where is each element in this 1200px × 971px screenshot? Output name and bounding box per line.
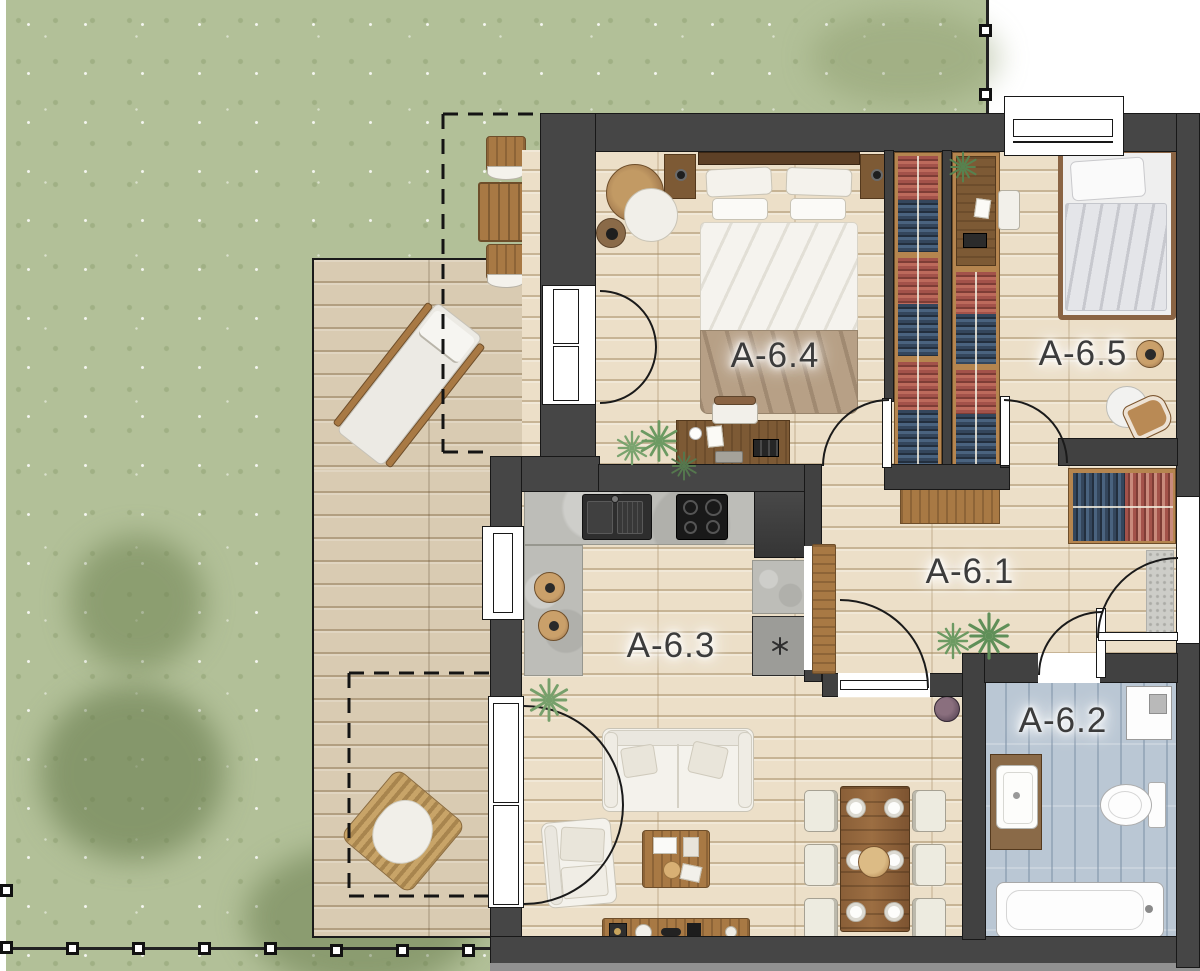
lamp-icon: [871, 169, 883, 181]
single-bed: [1058, 148, 1176, 320]
cooktop: [676, 494, 728, 540]
coffee-table: [642, 830, 710, 888]
lamp-icon: [675, 169, 687, 181]
kitchen-sink: [582, 494, 652, 540]
wall-a64-east: [884, 150, 894, 402]
closet-rail: [1073, 506, 1173, 508]
wall-a65-south: [1058, 438, 1178, 466]
floor-plan: A-6.1 A-6.2 A-6.3 A-6.4 A-6.5: [0, 0, 1200, 971]
toilet: [1100, 780, 1170, 830]
counter-stool: [538, 610, 569, 641]
fence-post: [979, 24, 992, 37]
bistro-chair: [486, 244, 526, 290]
round-chair-cushion: [624, 188, 678, 242]
door-leaf-a64: [882, 398, 892, 468]
garden-edge-strip: [0, 0, 6, 971]
dining-chair: [912, 790, 946, 832]
dining-chair: [804, 898, 838, 940]
plate: [884, 902, 904, 922]
bath-door-opening: [1038, 653, 1100, 683]
washing-machine: [1126, 686, 1172, 740]
entry-door-opening: [1176, 496, 1200, 644]
vanity: [990, 754, 1042, 850]
faucet-icon: [1145, 905, 1153, 913]
desk-chair-a65: [998, 190, 1020, 230]
wall-bottom: [490, 936, 1200, 966]
side-table: [596, 218, 626, 248]
wall-kitchen-north: [598, 464, 822, 492]
decor-vase: [934, 696, 960, 722]
window-top: [1004, 96, 1124, 156]
fence-post: [0, 941, 13, 954]
room-label-hall: A-6.1: [926, 552, 1015, 592]
grass-shade: [810, 10, 1000, 105]
armchair: [540, 817, 617, 909]
tree-canopy: [40, 685, 225, 860]
dining-chair: [912, 844, 946, 886]
room-label-living-kitchen: A-6.3: [627, 626, 716, 666]
wardrobe-a64: [894, 152, 942, 468]
bathtub: [996, 882, 1164, 938]
fence-post: [979, 88, 992, 101]
fence-post: [396, 944, 409, 957]
freezer-appliance: [752, 616, 808, 676]
wall-hall-north-a: [884, 464, 1010, 490]
wall-bath-west: [962, 653, 986, 940]
dining-chair: [912, 898, 946, 940]
fridge: [754, 486, 806, 558]
round-stool: [1136, 340, 1164, 368]
bathroom-sink: [996, 765, 1038, 829]
wall-closet-divider: [942, 150, 952, 468]
kitchen-window: [482, 526, 524, 620]
dining-set: [800, 784, 950, 944]
bistro-chair: [486, 136, 526, 182]
desk-chair: [712, 396, 758, 424]
wardrobe-desk-a65: [952, 152, 1000, 468]
fence-post: [330, 944, 343, 957]
kitchen-block: [752, 560, 806, 614]
fence-post: [66, 942, 79, 955]
terrace-door-living: [488, 696, 524, 908]
door-leaf-entry: [1098, 632, 1178, 641]
faucet-icon: [1013, 792, 1020, 799]
coat-rack: [1068, 468, 1176, 544]
fence-post: [132, 942, 145, 955]
fence-post: [198, 942, 211, 955]
plate: [884, 798, 904, 818]
room-label-bedroom-main: A-6.4: [731, 336, 820, 376]
tree-canopy: [70, 535, 205, 670]
desk: [676, 420, 790, 468]
sliding-barn-door: [812, 544, 836, 674]
balcony-door-a64: [542, 285, 596, 405]
door-leaf-hall-living: [840, 680, 928, 690]
room-label-bedroom-small: A-6.5: [1039, 334, 1128, 374]
counter-stool: [534, 572, 565, 603]
fence-post: [462, 944, 475, 957]
dining-chair: [804, 844, 838, 886]
sofa: [602, 728, 754, 812]
fence-post: [264, 942, 277, 955]
door-leaf-a65: [1000, 396, 1010, 466]
nightstand: [664, 154, 696, 199]
closet-rail: [975, 272, 977, 464]
dining-chair: [804, 790, 838, 832]
snowflake-icon: [769, 635, 791, 657]
faucet-icon: [611, 495, 619, 503]
plate: [846, 902, 866, 922]
entry-doormat: [1146, 550, 1174, 638]
centerpiece-bowl: [858, 846, 890, 878]
fence-post: [0, 884, 13, 897]
wall-bottom-outer: [490, 963, 1200, 971]
door-leaf-bath: [1096, 608, 1106, 678]
plate: [846, 798, 866, 818]
closet-rail: [917, 156, 919, 464]
room-label-bathroom: A-6.2: [1019, 701, 1108, 741]
